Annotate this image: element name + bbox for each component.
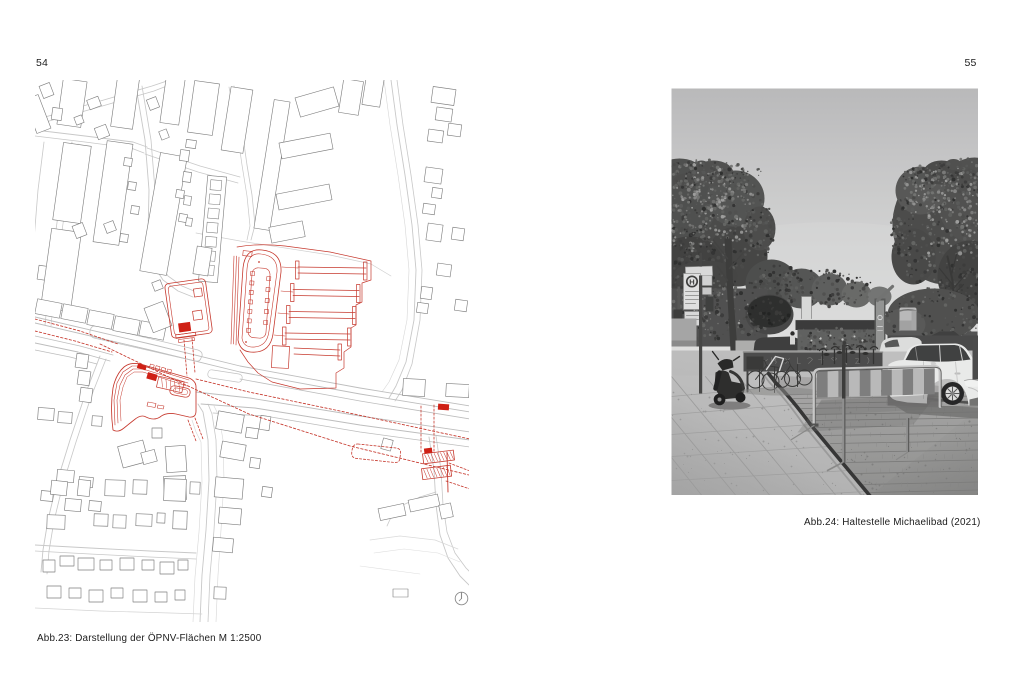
svg-text:H: H (689, 278, 694, 287)
